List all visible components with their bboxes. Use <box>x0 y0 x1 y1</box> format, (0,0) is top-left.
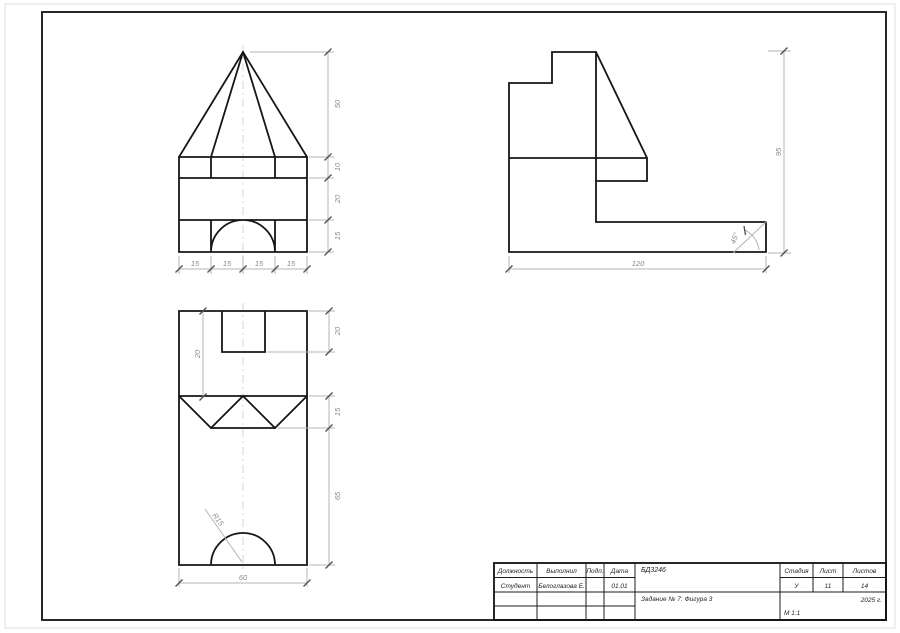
dim-label: 120 <box>632 259 645 268</box>
dim-label: 15 <box>255 259 264 268</box>
sheet-edge <box>5 4 895 628</box>
top-view <box>179 303 307 572</box>
dim-label: 20 <box>333 194 342 204</box>
tb-header-stage: Стадия <box>784 567 809 575</box>
side-dim-lines <box>509 51 791 273</box>
drawing-canvas: 50 10 20 15 15 15 15 15 95 120 45° 20 15… <box>0 0 900 633</box>
tb-value-completed-by: Белоглазова Е. <box>538 583 585 590</box>
side-view-dimensions: 95 120 45° <box>506 48 792 274</box>
tb-value-stage: У <box>793 583 799 590</box>
front-dim-ticks <box>176 49 332 273</box>
dim-label: 95 <box>774 147 783 156</box>
dim-label: 15 <box>223 259 232 268</box>
tb-header-position: Должность <box>497 568 534 575</box>
title-block: Должность Выполнил Подп. Дата Студент Бе… <box>494 563 886 620</box>
side-outline <box>509 52 766 252</box>
dim-label: 15 <box>333 407 342 416</box>
tb-value-sheets: 14 <box>861 583 869 590</box>
top-dim-ticks <box>176 308 333 587</box>
top-view-dimensions: 20 15 65 20 60 R15 <box>176 308 343 588</box>
dim-label: 15 <box>287 259 296 268</box>
tb-header-sheets: Листов <box>852 568 877 575</box>
dim-label: 60 <box>239 573 248 582</box>
drawing-frame <box>42 12 886 620</box>
dim-label: 50 <box>333 99 342 108</box>
dim-label: 20 <box>333 326 342 336</box>
front-dim-lines <box>179 52 334 274</box>
tb-task-title: Задание № 7: Фигура 3 <box>641 595 713 603</box>
tb-value-date: 01.01 <box>611 583 628 590</box>
front-view <box>179 45 307 258</box>
radius-label: R15 <box>210 511 226 528</box>
tb-header-sheet: Лист <box>819 568 837 575</box>
tb-header-date: Дата <box>610 568 629 575</box>
tb-doc-code: БД3246 <box>641 567 666 574</box>
dim-label: 10 <box>333 162 342 171</box>
tb-header-completed-by: Выполнил <box>546 568 577 575</box>
tb-header-signature: Подп. <box>586 567 603 575</box>
angle-label: 45° <box>728 231 740 245</box>
tb-value-position: Студент <box>501 582 531 590</box>
drawing-sheet: 50 10 20 15 15 15 15 15 95 120 45° 20 15… <box>0 0 900 633</box>
tb-year: 2025 г. <box>860 597 882 604</box>
dim-label: 15 <box>191 259 200 268</box>
dim-label: 20 <box>193 349 202 359</box>
side-view <box>509 52 766 252</box>
tb-value-sheet: 11 <box>825 583 832 590</box>
tb-scale: М 1:1 <box>784 610 801 617</box>
dim-label: 15 <box>333 231 342 240</box>
front-view-dimensions: 50 10 20 15 15 15 15 15 <box>176 49 343 275</box>
dim-label: 65 <box>333 491 342 500</box>
